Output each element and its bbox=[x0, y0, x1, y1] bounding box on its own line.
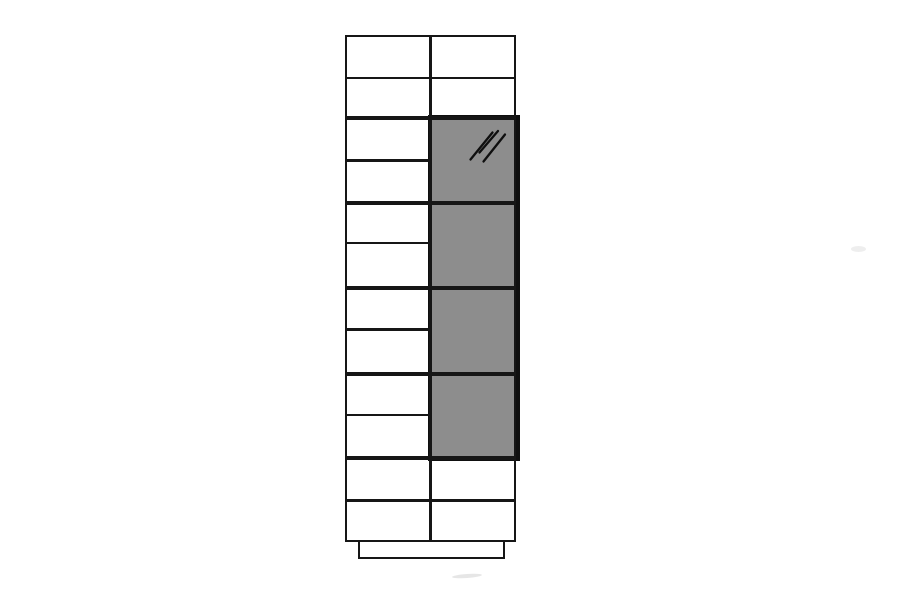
shelf-line-thin-full bbox=[345, 499, 516, 502]
shelf-line-thin-left bbox=[345, 159, 432, 162]
shelf-line-thick-full bbox=[345, 201, 516, 205]
shelf-line-thin-left bbox=[345, 414, 432, 417]
artifact-smudge bbox=[452, 573, 482, 579]
shelf-line-thin-full bbox=[345, 77, 516, 80]
shelf-line-thin-left bbox=[345, 328, 432, 331]
shelf-line-thick-full bbox=[345, 456, 516, 460]
shelf-line-thin-left bbox=[345, 242, 432, 245]
plinth-base bbox=[358, 540, 505, 559]
cabinet-line-drawing bbox=[0, 0, 900, 600]
shelf-line-thick-full bbox=[345, 286, 516, 290]
artifact-smudge bbox=[851, 246, 866, 252]
shelf-line-thick-full bbox=[345, 116, 516, 120]
shelf-line-thick-full bbox=[345, 372, 516, 376]
